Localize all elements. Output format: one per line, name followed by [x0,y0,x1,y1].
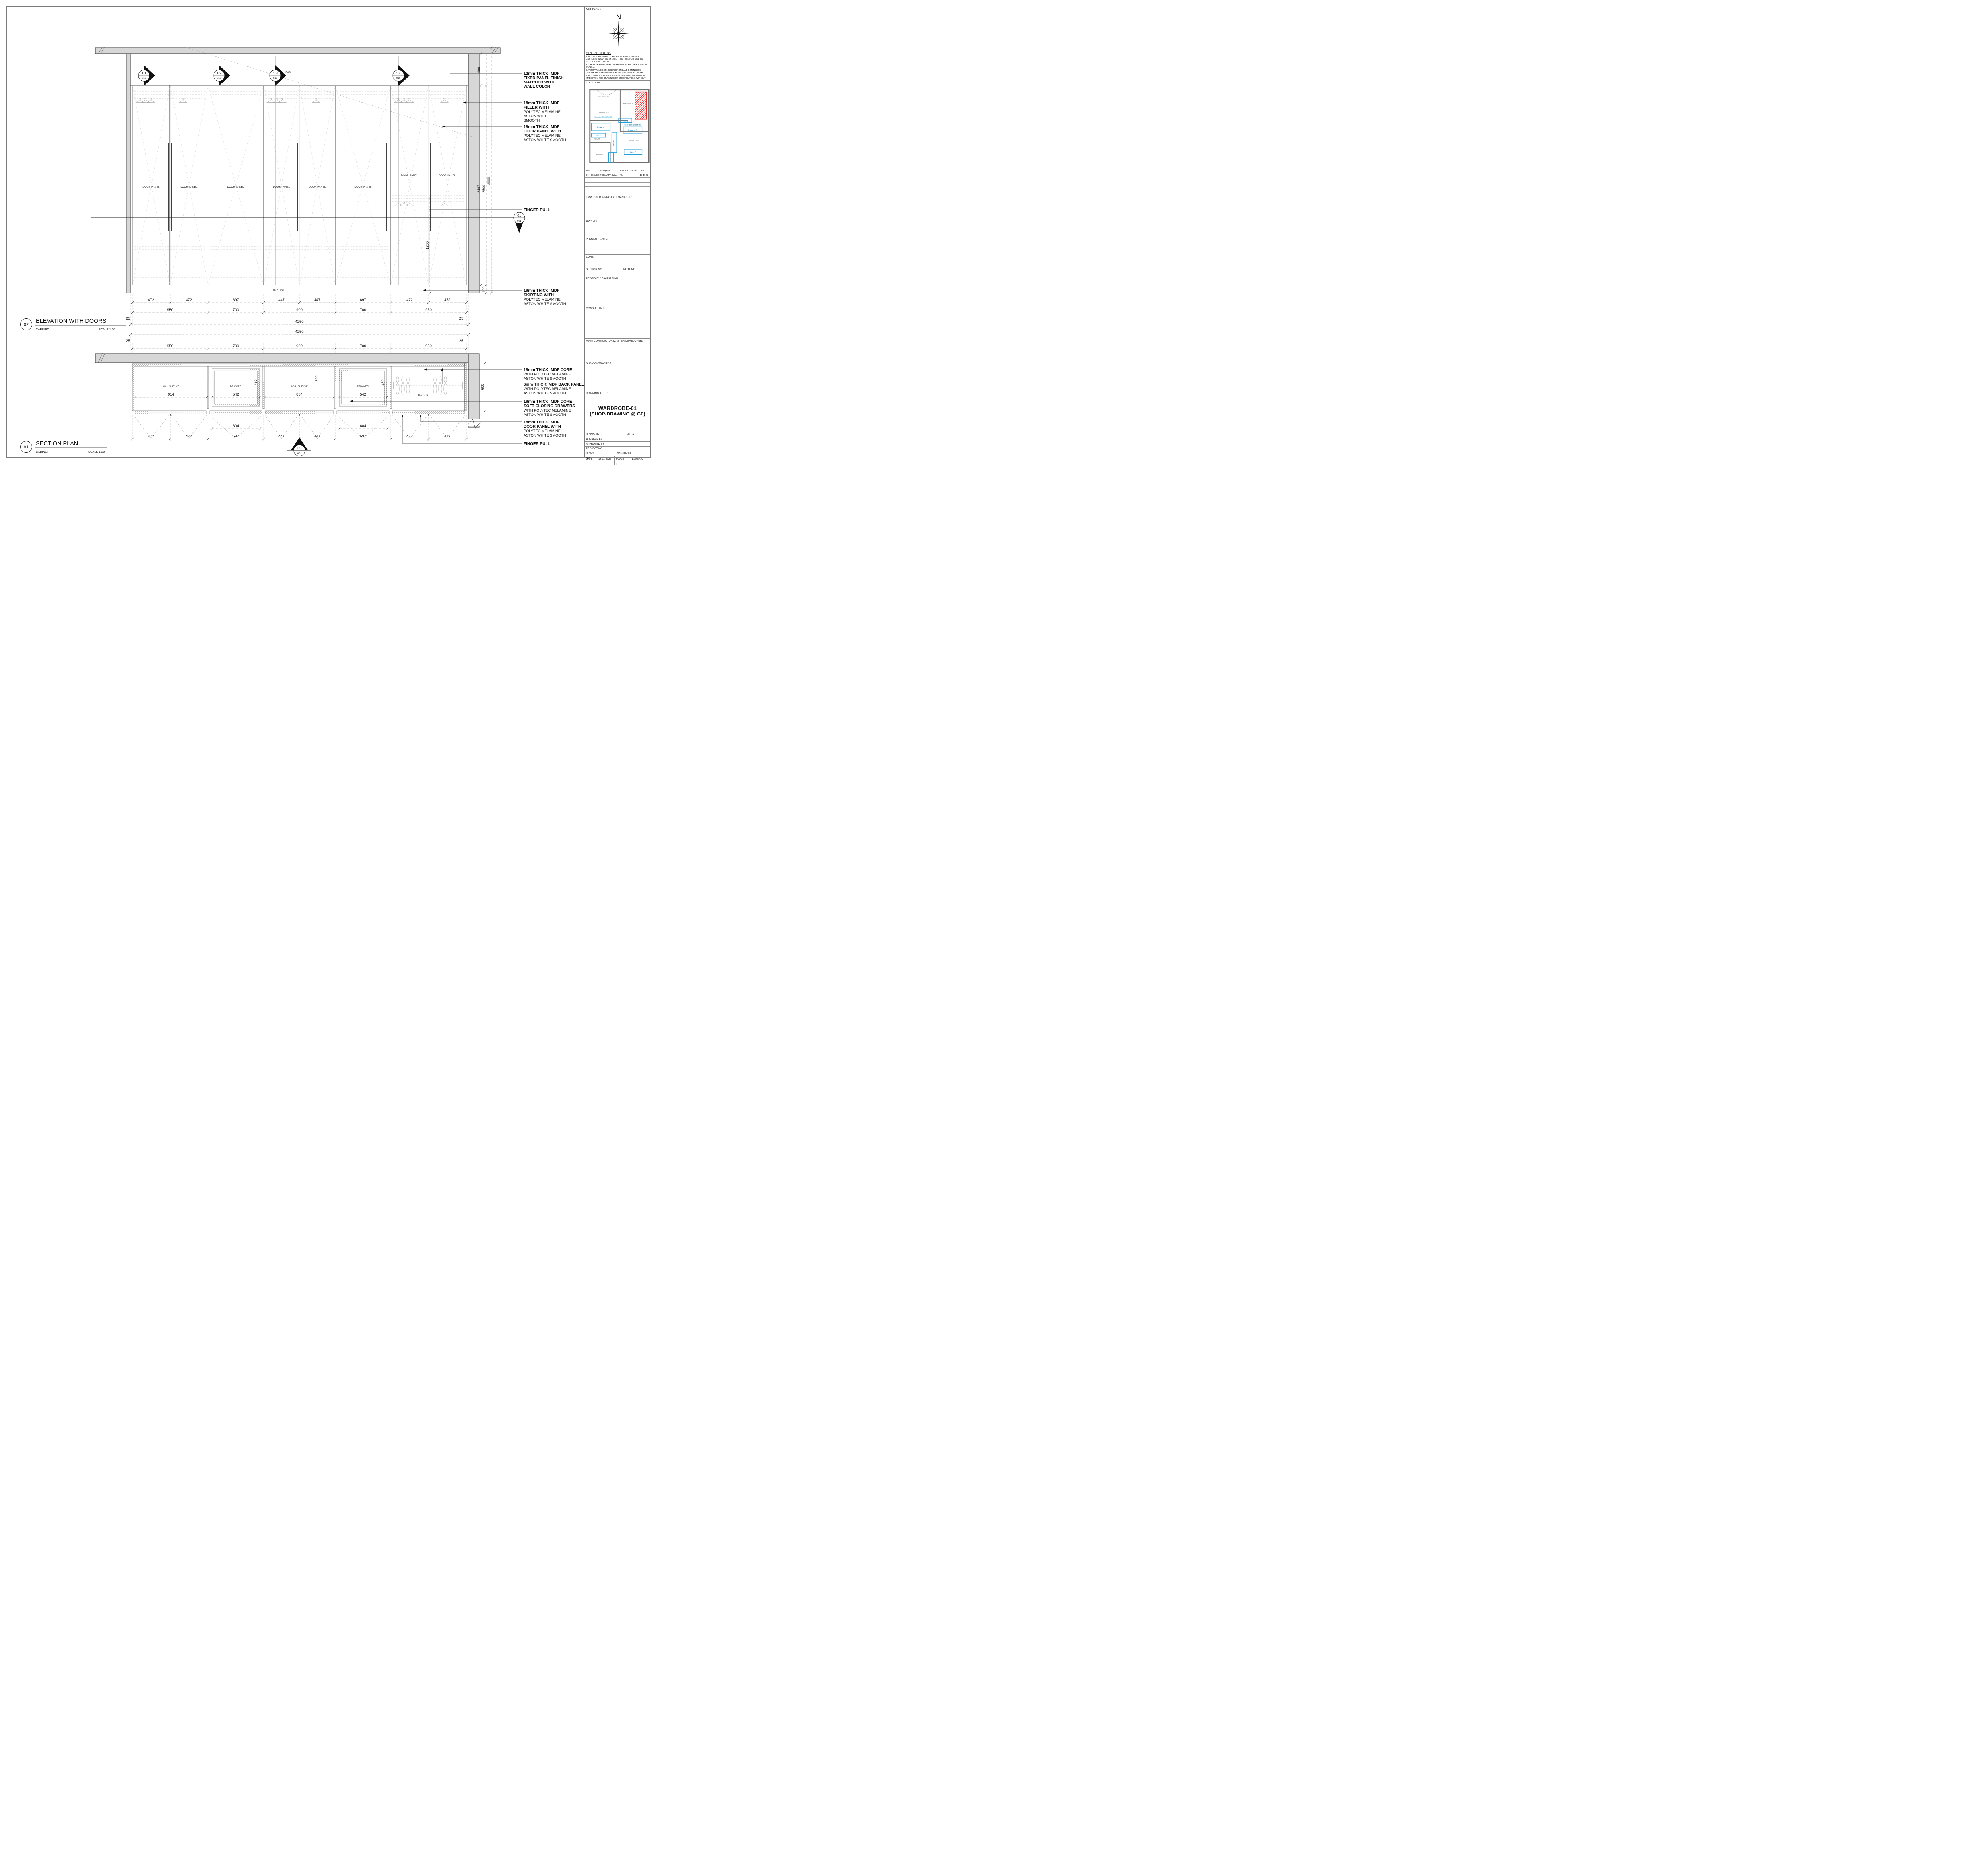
svg-text:SCALE 1:20: SCALE 1:20 [88,450,105,454]
location-item6: Item 6 [612,140,615,146]
svg-text:697: 697 [360,298,366,302]
left-wall [127,54,130,293]
svg-text:WITH POLYTEC MELAMINE: WITH POLYTEC MELAMINE [524,387,571,391]
svg-text:POLYTEC MELAMINE: POLYTEC MELAMINE [524,297,561,301]
rev-cell: TL [618,173,625,178]
drawn-by-row: DRAWN BY TALHA [585,432,650,437]
svg-text:ASTON WHITE SMOOTH: ASTON WHITE SMOOTH [524,433,566,437]
location-item5: Item 5 [596,135,601,137]
svg-text:604: 604 [360,424,366,428]
svg-text:ASTON WHITE: ASTON WHITE [524,114,549,118]
svg-text:016: 016 [142,77,146,80]
general-notes-section: GENERAL NOTES:- 1. IT IS NOT ALLOWED TO … [585,51,650,81]
svg-text:1.2: 1.2 [217,71,221,75]
rev-header: DATE [638,169,650,173]
consultant-section: CONSULTANT: [585,306,650,339]
drawing-title-line2: (SHOP-DRAWING @ GF) [586,411,649,417]
location-item3: Item - 3 [628,129,637,132]
svg-text:ASTON WHITE SMOOTH: ASTON WHITE SMOOTH [524,138,566,142]
svg-text:SOFT CLOSING DRAWERS: SOFT CLOSING DRAWERS [524,404,575,408]
svg-text:016: 016 [273,77,278,80]
door-swing-lines [133,415,466,441]
skirting-label: SKIRTING [273,289,284,291]
location-section: LOCATION:- [585,81,650,169]
svg-text:1.1: 1.1 [142,71,146,75]
svg-text:18mm THICK: MDF: 18mm THICK: MDF [524,289,559,293]
location-rumpus: RUMPUS [596,153,603,155]
svg-text:6mm THICK: MDF BACK PANEL: 6mm THICK: MDF BACK PANEL [524,382,584,387]
svg-text:450: 450 [254,379,258,385]
svg-text:ASTON WHITE SMOOTH: ASTON WHITE SMOOTH [524,413,566,417]
back-panel [134,364,465,366]
svg-text:447: 447 [278,298,285,302]
svg-text:1200: 1200 [425,241,429,249]
key-plan-section: KEY PLAN :- N [585,7,650,51]
svg-text:447: 447 [314,434,320,439]
door-panel-label: DOOR PANEL [273,186,290,188]
svg-text:CABINET: CABINET [36,328,49,331]
hanger-icons [136,98,448,206]
svg-text:864: 864 [296,392,303,397]
drawer-label: DRAWER [230,385,241,388]
door-panel-label: DOOR PANEL [142,186,160,188]
svg-text:001: 001 [297,452,302,455]
elevation-title-number: 02 [24,322,29,327]
door-panel-label: DOOR PANEL [180,186,198,188]
note-line: 1. IT IS NOT ALLOWED TO REPRODUCE THIS S… [586,56,649,63]
key-plan-label: KEY PLAN :- [586,8,649,10]
svg-text:CABINET: CABINET [36,450,49,454]
scale-value: 1:20 @ A3 [625,456,650,465]
svg-text:100: 100 [482,286,486,292]
hanger-bay: HANGER [394,377,463,397]
drawing-title-section: DRAWING TITLE: WARDROBE-01 (SHOP-DRAWING… [585,391,650,432]
svg-text:01: 01 [517,214,521,217]
svg-text:500: 500 [315,375,319,381]
svg-text:WALL COLOR: WALL COLOR [524,85,551,89]
adj-shelve-label: ADJ. SHELVE [291,385,308,388]
svg-text:12mm THICK: MDF: 12mm THICK: MDF [524,72,559,76]
main-drawing-area: BULKHEAD [0,0,658,465]
section-marker-01: 01 001 [514,212,525,233]
main-contractor-section: MAIN CONTRACTOR/MASTER DEVELOPER: [585,339,650,361]
door-panel-label: DOOR PANEL [439,174,456,177]
section-wall-band [95,354,479,363]
svg-text:450: 450 [381,379,385,385]
sector-plot-section: SECTOR NO. : PLOT NO. : [585,267,650,276]
svg-text:472: 472 [444,298,450,302]
location-item7: Item 7 [630,151,636,154]
project-description-section: PROJECT DESCRIPTION: [585,276,650,306]
checked-by-row: CHECKED BY [585,437,650,442]
note-line: 3. VERIFY ALL EXISTING CONDITIONS AND DI… [586,69,649,74]
svg-text:FINGER PULL: FINGER PULL [524,208,550,212]
svg-text:001: 001 [517,220,522,223]
svg-text:3000: 3000 [487,177,491,185]
svg-text:SKIRTING WITH: SKIRTING WITH [524,293,554,297]
svg-text:472: 472 [406,298,413,302]
svg-text:18mm THICK: MDF: 18mm THICK: MDF [524,101,559,105]
svg-text:604: 604 [233,424,239,428]
svg-text:25: 25 [126,339,130,343]
project-no-row: PROJECT NO. [585,447,650,451]
section-plan-view: 4250 25 25 950 700 900 700 950 [95,330,486,456]
general-notes-label: GENERAL NOTES:- [586,52,649,55]
section-top-dimensions: 4250 25 25 950 700 900 700 950 [126,330,470,353]
svg-text:600: 600 [481,384,485,390]
rev-cell [631,173,638,178]
location-item2: Item 2 [623,120,628,122]
rev-header: APPD [631,169,638,173]
elevation-markers: 1.1 016 1.2 016 1.3 016 1.4 016 [138,65,410,86]
hanger-label: HANGER [417,394,429,397]
svg-text:447: 447 [278,434,285,439]
sub-contractor-section: SUB CONTRACTOR: [585,361,650,391]
view-titles: 02 ELEVATION WITH DOORS CABINET SCALE 1:… [21,318,127,454]
svg-text:ASTON WHITE SMOOTH: ASTON WHITE SMOOTH [524,302,566,306]
rev-header: Rev [585,169,590,173]
door-panel-label: DOOR PANEL [401,174,418,177]
location-ensuite: ENSUITE [594,138,600,140]
svg-text:FILLER WITH: FILLER WITH [524,105,549,110]
svg-text:472: 472 [148,434,154,439]
location-wardrobe-note: Wardrobe 2000x600x3000 [594,116,612,118]
revision-table: Rev Description DRN CKD APPD DATE 00 ISS… [585,169,650,195]
wardrobe-location-highlight [635,92,646,119]
rev-cell: ISSUED FOR APPROVAL [590,173,618,178]
svg-text:472: 472 [406,434,413,439]
door-panel-label: DOOR PANEL [227,186,245,188]
svg-text:POLYTEC MELAMINE: POLYTEC MELAMINE [524,429,561,433]
location-bedroom1: BEDROOM 1 [623,102,633,104]
elevation-view: BULKHEAD [91,47,525,326]
svg-text:MATCHED WITH: MATCHED WITH [524,80,555,85]
note-line: 2. THESE DRAWINGS ARE DIAGRAMMATIC AND S… [586,64,649,69]
svg-text:FIXED PANEL FINISH: FIXED PANEL FINISH [524,76,564,80]
date-value: 13-11-2022 [595,456,614,465]
rev-header: Description [590,169,618,173]
svg-text:914: 914 [168,392,174,397]
ceiling-band [95,48,500,54]
location-vanity-note: Floating Vanity 1200x450 [624,124,641,126]
svg-text:472: 472 [148,298,154,302]
rev-cell: 00 [585,173,590,178]
svg-text:ASTON WHITE SMOOTH: ASTON WHITE SMOOTH [524,391,566,395]
svg-text:016: 016 [217,77,221,80]
end-panel-right [465,363,467,411]
location-label: LOCATION:- [586,82,649,84]
location-item4: Item 4 [597,126,605,129]
svg-text:1.3: 1.3 [273,71,278,75]
svg-text:ASTON WHITE SMOOTH: ASTON WHITE SMOOTH [524,377,566,381]
svg-text:950: 950 [425,308,432,312]
svg-text:SMOOTH: SMOOTH [524,118,540,122]
rev-cell [625,173,631,178]
svg-text:2497: 2497 [477,185,481,193]
elevation-vertical-dims: 400 2497 2500 3000 100 1200 [425,47,493,294]
svg-text:697: 697 [360,434,366,439]
svg-text:542: 542 [233,392,239,397]
svg-text:900: 900 [296,308,303,312]
svg-text:WITH POLYTEC MELAMINE: WITH POLYTEC MELAMINE [524,372,571,376]
svg-text:FINGER PULL: FINGER PULL [524,442,550,446]
project-name-section: PROJECT NAME: [585,237,650,255]
svg-text:POLYTEC MELAMINE: POLYTEC MELAMINE [524,110,561,114]
svg-text:697: 697 [233,298,239,302]
svg-text:472: 472 [444,434,450,439]
door-panel-label: DOOR PANEL [354,186,372,188]
svg-text:18mm THICK: MDF: 18mm THICK: MDF [524,420,559,425]
drawer-label: DRAWER [357,385,369,388]
elevation-title: ELEVATION WITH DOORS [36,318,107,324]
svg-text:400: 400 [477,67,481,73]
svg-text:18mm THICK: MDF: 18mm THICK: MDF [524,125,559,129]
location-front-porch: FRONT PORCH [598,96,609,98]
svg-text:700: 700 [233,344,239,348]
svg-text:2500: 2500 [482,185,486,193]
north-compass-icon: N [586,10,650,47]
door-panel-label: DOOR PANEL [309,186,326,188]
svg-text:02: 02 [297,446,301,450]
svg-text:25: 25 [459,339,464,343]
right-wall [468,54,479,293]
svg-text:542: 542 [360,392,366,397]
employer-section: EMPLOYER & PROJECT MANAGER: [585,195,650,219]
svg-text:N: N [616,13,621,21]
drawn-by-value: TALHA [610,432,650,437]
drwg-no-row: DRWG. NO.: WD-SD-001 [585,451,650,456]
svg-text:900: 900 [296,344,303,348]
svg-text:950: 950 [425,344,432,348]
svg-text:700: 700 [233,308,239,312]
svg-text:18mm THICK: MDF CORE: 18mm THICK: MDF CORE [524,400,572,404]
drawing-title-line1: WARDROBE-01 [586,405,649,411]
location-robe: ROBE [609,156,611,161]
svg-text:697: 697 [233,434,239,439]
section-bottom-dimensions: 472 472 697 447 447 697 472 472 [131,415,468,441]
svg-text:950: 950 [167,308,173,312]
approved-by-row: APPROVED BY : [585,442,650,447]
svg-text:DOOR PANEL WITH: DOOR PANEL WITH [524,425,561,429]
note-line: 4. NO CHANGES, MODIFICATIONS OR DEVIATIO… [586,75,649,81]
svg-text:WITH POLYTEC MELAMINE: WITH POLYTEC MELAMINE [524,408,571,412]
location-bedroom3: BEDROOM 3 [629,139,639,141]
svg-text:016: 016 [396,77,401,80]
rev-header: DRN [618,169,625,173]
svg-text:950: 950 [167,344,173,348]
location-plan-thumbnail: Item 4 Item 5 Item 6 Item 2 Item - 3 Ite… [586,84,650,165]
owner-section: OWNER: [585,219,650,237]
svg-text:SCALE 1:20: SCALE 1:20 [99,328,115,331]
date-scale-row: DATE: 13-11-2022 SCALE : 1:20 @ A3 [585,456,650,462]
section-title: SECTION PLAN [36,441,78,447]
svg-text:472: 472 [186,434,192,439]
svg-text:700: 700 [360,344,366,348]
rev-cell: 13-11-22 [638,173,650,178]
svg-text:447: 447 [314,298,320,302]
rev-header: CKD [625,169,631,173]
elevation-annotations: 12mm THICK: MDF FIXED PANEL FINISH MATCH… [423,72,566,306]
svg-text:1.4: 1.4 [396,71,401,75]
section-right-wall [468,354,479,427]
drawing-sheet: BULKHEAD [0,0,658,465]
zone-section: ZONE: [585,255,650,267]
svg-text:DOOR PANEL WITH: DOOR PANEL WITH [524,129,561,134]
elevation-dimensions: 472 472 697 447 447 697 472 472 950 700 … [126,294,470,326]
adj-shelve-label: ADJ. SHELVE [163,385,180,388]
svg-text:4250: 4250 [295,320,303,324]
svg-text:700: 700 [360,308,366,312]
title-block: KEY PLAN :- N GENERAL NOTES:- 1. IT IS N… [584,6,651,458]
svg-text:472: 472 [186,298,192,302]
location-bedroom2: BEDROOM 2 [599,111,608,113]
svg-text:4250: 4250 [295,330,303,334]
section-marker-02: 02 001 [287,437,311,456]
svg-text:18mm THICK: MDF CORE: 18mm THICK: MDF CORE [524,368,572,372]
svg-text:25: 25 [126,316,130,321]
svg-text:POLYTEC MELAMINE: POLYTEC MELAMINE [524,134,561,138]
svg-text:25: 25 [459,316,464,321]
section-title-number: 01 [24,445,29,450]
end-panel-left [132,363,134,411]
